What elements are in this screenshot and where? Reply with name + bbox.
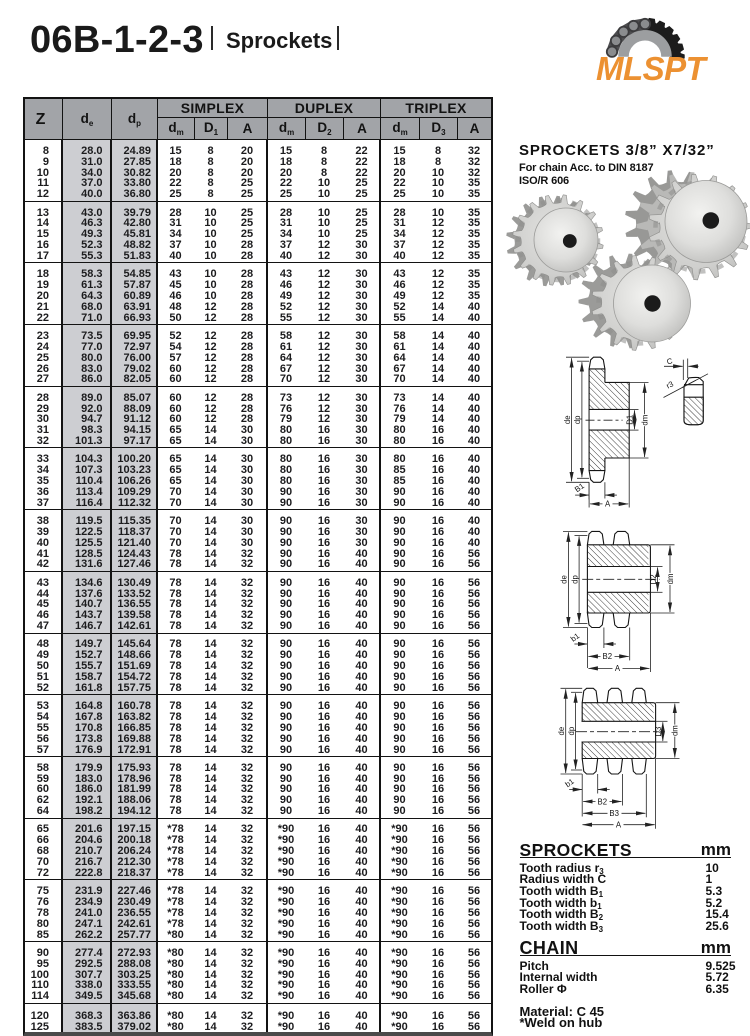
svg-text:A: A: [616, 821, 622, 830]
svg-text:de: de: [557, 727, 566, 736]
svg-text:dm: dm: [671, 725, 680, 736]
svg-text:A: A: [615, 664, 621, 673]
svg-text:dm: dm: [666, 573, 675, 584]
svg-text:D3: D3: [654, 727, 663, 737]
svg-text:dp: dp: [573, 415, 582, 424]
svg-text:de: de: [563, 415, 572, 424]
svg-text:dp: dp: [570, 575, 579, 584]
svg-text:C: C: [666, 356, 674, 366]
svg-text:A: A: [605, 499, 611, 508]
svg-text:dm: dm: [640, 415, 649, 426]
svg-text:r3: r3: [665, 379, 675, 390]
svg-text:dp: dp: [567, 726, 576, 735]
svg-text:D2: D2: [649, 574, 658, 584]
svg-text:b1: b1: [563, 777, 575, 789]
svg-text:de: de: [560, 575, 569, 584]
svg-text:B1: B1: [573, 481, 586, 494]
svg-text:D1: D1: [626, 415, 635, 425]
svg-text:B3: B3: [609, 809, 619, 818]
svg-text:B2: B2: [598, 797, 608, 806]
svg-text:B2: B2: [603, 652, 613, 661]
svg-text:b1: b1: [569, 631, 581, 643]
